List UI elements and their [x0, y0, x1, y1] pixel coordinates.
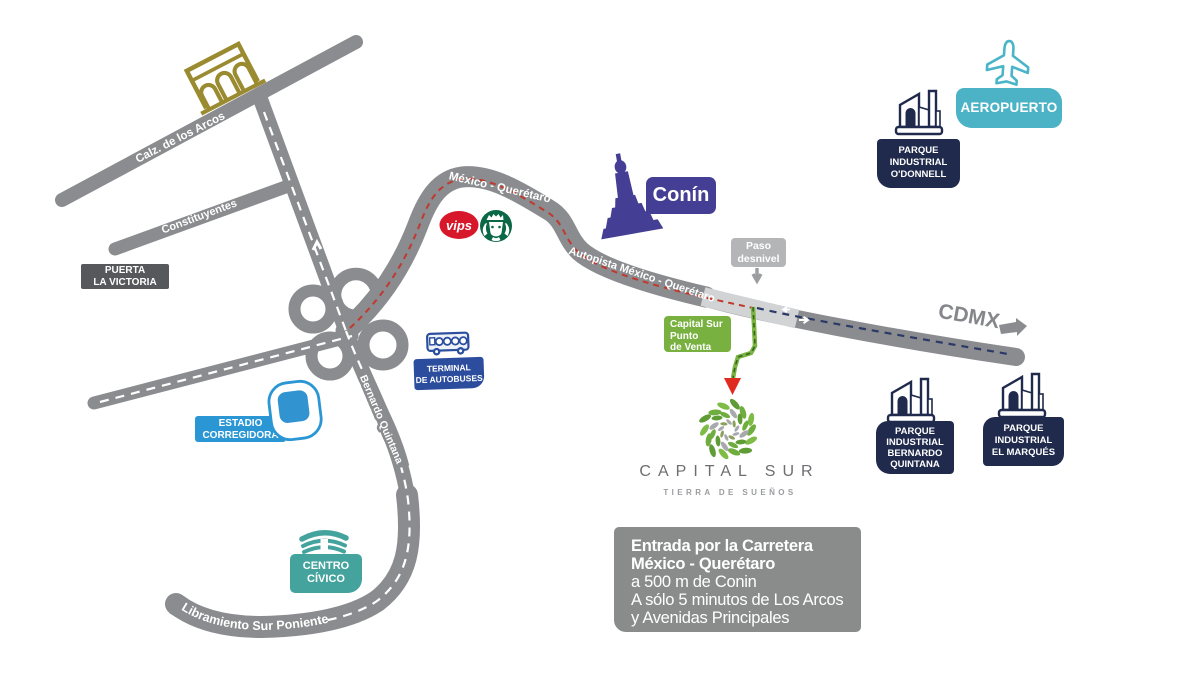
- svg-text:Constituyentes: Constituyentes: [160, 197, 239, 236]
- svg-text:Calz. de los Arcos: Calz. de los Arcos: [134, 110, 227, 165]
- svg-text:Bernardo Quintana: Bernardo Quintana: [357, 373, 405, 465]
- svg-text:Autopista México - Querétaro: Autopista México - Querétaro: [567, 245, 717, 305]
- svg-text:vips: vips: [446, 218, 472, 233]
